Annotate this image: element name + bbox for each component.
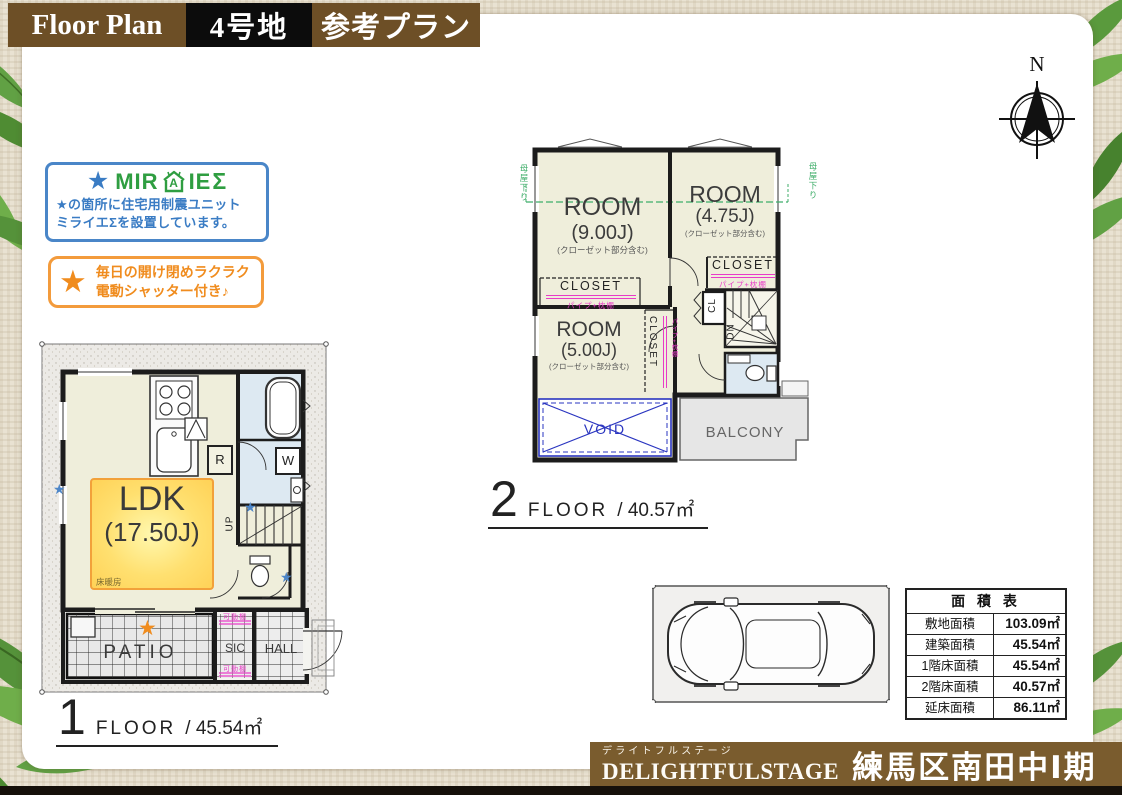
closet-a-pipe-label: パイプ+枕棚	[546, 300, 636, 311]
void-label: VOID	[537, 421, 673, 437]
floor-heating-label: 床暖房	[96, 576, 122, 588]
floor2-area-label: 2 FLOOR / 40.57㎡	[488, 478, 708, 529]
miraie-logo-prefix: MIR	[115, 171, 158, 193]
hall-label: HALL	[255, 641, 307, 656]
cl-label: CL	[707, 298, 718, 313]
shelf-label-bottom: 可動棚	[217, 664, 253, 674]
compass: N	[995, 54, 1079, 168]
flyer-canvas: Floor Plan 4号地 参考プラン N ★ MIR	[0, 0, 1122, 795]
table-row: 敷地面積 103.09㎡	[907, 614, 1065, 635]
room-9j: ROOM (9.00J) (クローゼット部分含む)	[535, 194, 670, 255]
fridge-label: R	[208, 452, 232, 467]
ldk-room: LDK (17.50J)	[90, 478, 214, 590]
miraie-logo-suffix: IE	[189, 171, 212, 193]
brand-furigana: デライトフルステージ	[602, 747, 839, 757]
table-row: 建築面積 45.54㎡	[907, 635, 1065, 656]
floor1-area-label: 1 FLOOR / 45.54㎡	[56, 696, 278, 747]
brand-name: DELIGHTFULSTAGE	[602, 760, 839, 783]
bottom-strip	[0, 786, 1122, 795]
miraie-text-line2: ミライエΣを設置しています。	[56, 214, 258, 232]
closet-c-pipe-line	[663, 316, 667, 388]
closet-c-pipe-label: パイプ+枕棚	[668, 318, 678, 357]
electric-shutter-box: ★ 毎日の開け閉めラクラク 電動シャッター付き♪	[48, 256, 264, 308]
room-5j: ROOM (5.00J) (クローゼット部分含む)	[535, 318, 643, 371]
header: Floor Plan 4号地 参考プラン	[8, 3, 480, 47]
seismic-star-icon: ★	[280, 570, 293, 584]
shutter-text-line2: 電動シャッター付き♪	[96, 282, 250, 301]
area-table-title: 面 積 表	[907, 590, 1065, 614]
closet-b-pipe-label: パイプ+枕棚	[711, 279, 775, 290]
seismic-star-icon: ★	[244, 500, 257, 514]
room-475j: ROOM (4.75J) (クローゼット部分含む)	[672, 182, 778, 238]
dn-label: DN	[726, 323, 737, 339]
area-table: 面 積 表 敷地面積 103.09㎡ 建築面積 45.54㎡ 1階床面積 45.…	[905, 588, 1067, 720]
miraie-seismic-box: ★ MIR A IE Σ ★の箇所に住宅用制震ユニット ミライエΣを設置していま…	[45, 162, 269, 242]
lot-badge: 4号地	[186, 3, 312, 47]
miraie-house-letter: A	[161, 177, 187, 189]
eaves-note-right: 母屋下り	[807, 162, 819, 200]
eaves-note-left: 母屋下り	[518, 164, 530, 202]
ldk-label: LDK	[92, 482, 212, 518]
compass-icon	[995, 75, 1079, 163]
shutter-star-icon: ★	[138, 618, 157, 639]
brand-banner: デライトフルステージ DELIGHTFULSTAGE 練馬区南田中Ⅰ期	[590, 742, 1122, 787]
shutter-text: 毎日の開け閉めラクラク 電動シャッター付き♪	[96, 263, 250, 301]
miraie-house-icon: A	[161, 170, 187, 194]
north-label: N	[995, 54, 1079, 75]
page-title: Floor Plan	[8, 3, 186, 47]
closet-a-pipe-line	[546, 295, 636, 299]
table-row: 2階床面積 40.57㎡	[907, 677, 1065, 698]
table-row: 1階床面積 45.54㎡	[907, 656, 1065, 677]
washer-label: W	[276, 453, 300, 468]
up-label: UP	[224, 516, 235, 532]
floor2-plan: 母屋下り 母屋下り ROOM (9.00J) (クローゼット部分含む) ROOM…	[520, 140, 820, 472]
closet-b-label: CLOSET	[708, 258, 778, 272]
seismic-star-icon: ★	[53, 482, 66, 496]
project-name: 練馬区南田中Ⅰ期	[852, 742, 1097, 787]
shutter-star-icon: ★	[59, 266, 87, 297]
ldk-size: (17.50J)	[92, 518, 212, 547]
patio-label: PATIO	[78, 642, 203, 664]
closet-b-pipe-line	[711, 274, 775, 278]
miraie-logo: ★ MIR A IE Σ	[56, 169, 258, 194]
shelf-label-top: 可動棚	[217, 612, 253, 622]
seismic-star-icon: ★	[87, 169, 109, 194]
closet-a-label: CLOSET	[542, 279, 640, 293]
shutter-text-line1: 毎日の開け閉めラクラク	[96, 263, 250, 282]
floor1-plan: LDK (17.50J) 床暖房 R W UP PATIO SIC HALL 可…	[40, 340, 350, 700]
parking-space	[652, 585, 890, 703]
closet-c-label: CLOSET	[647, 316, 658, 392]
car-top-view	[668, 598, 874, 690]
miraie-logo-sigma: Σ	[212, 170, 227, 193]
miraie-text-line1: ★の箇所に住宅用制震ユニット	[56, 196, 258, 214]
balcony-label: BALCONY	[682, 424, 808, 441]
brand-block: デライトフルステージ DELIGHTFULSTAGE	[602, 747, 839, 783]
sic-label: SIC	[215, 641, 255, 655]
plan-type-badge: 参考プラン	[312, 3, 480, 47]
table-row: 延床面積 86.11㎡	[907, 698, 1065, 718]
